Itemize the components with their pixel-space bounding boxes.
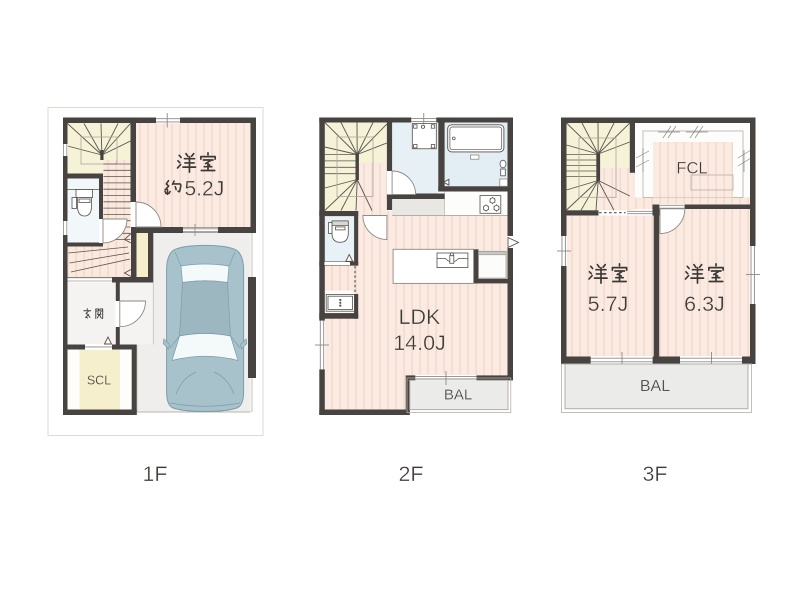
svg-text:BAL: BAL bbox=[444, 387, 472, 404]
svg-text:3F: 3F bbox=[642, 462, 667, 486]
svg-text:14.0J: 14.0J bbox=[393, 331, 446, 355]
svg-text:5.2J: 5.2J bbox=[185, 178, 225, 201]
svg-text:5.7J: 5.7J bbox=[588, 292, 629, 316]
svg-text:BAL: BAL bbox=[640, 378, 670, 395]
svg-text:1F: 1F bbox=[142, 462, 167, 486]
svg-text:LDK: LDK bbox=[399, 305, 441, 329]
svg-text:6.3J: 6.3J bbox=[684, 292, 725, 316]
svg-text:2F: 2F bbox=[398, 462, 423, 486]
svg-text:SCL: SCL bbox=[87, 374, 111, 388]
svg-text:FCL: FCL bbox=[676, 160, 707, 178]
